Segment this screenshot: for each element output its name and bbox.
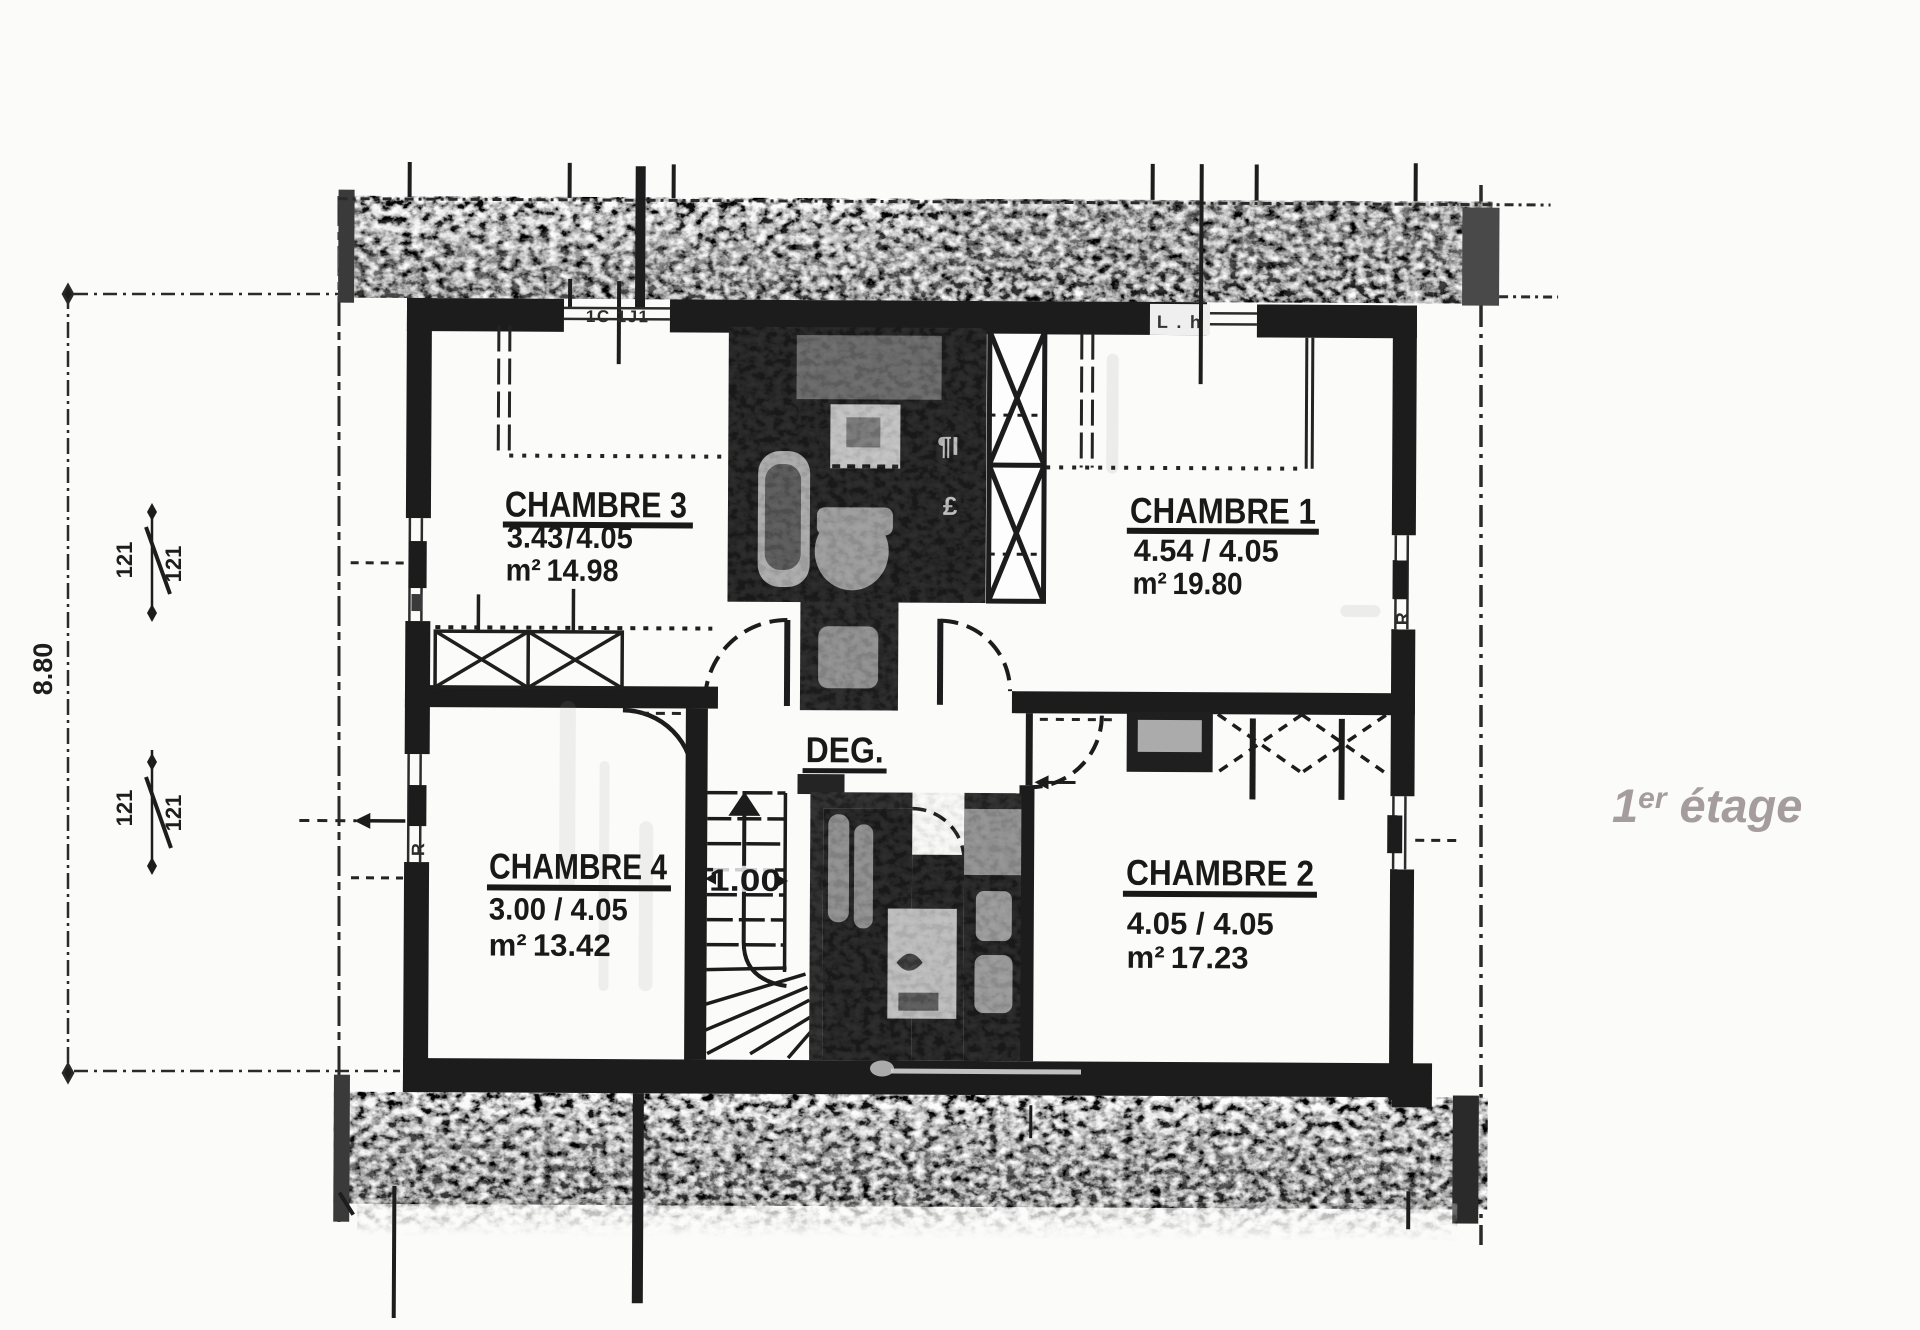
svg-text:4.05 / 4.05: 4.05 / 4.05 [1127, 906, 1274, 942]
svg-text:121: 121 [161, 546, 186, 583]
svg-text:CHAMBRE 1: CHAMBRE 1 [1130, 490, 1316, 532]
svg-text:8.80: 8.80 [28, 643, 58, 696]
svg-text:CHAMBRE 4: CHAMBRE 4 [489, 845, 667, 887]
svg-text:m² 17.23: m² 17.23 [1127, 940, 1249, 976]
svg-text:m² 14.98: m² 14.98 [506, 553, 619, 589]
svg-text:121: 121 [161, 795, 186, 832]
svg-text:4.54 / 4.05: 4.54 / 4.05 [1134, 533, 1279, 569]
svg-text:DEG.: DEG. [806, 729, 884, 770]
svg-text:121: 121 [112, 542, 137, 579]
svg-text:m² 13.42: m² 13.42 [489, 927, 611, 963]
svg-text:m² 19.80: m² 19.80 [1132, 566, 1242, 602]
svg-text:1C 1J1: 1C 1J1 [586, 307, 648, 326]
svg-text:3.00 / 4.05: 3.00 / 4.05 [489, 891, 628, 927]
svg-text:3.43 / 4.05: 3.43 / 4.05 [507, 520, 633, 556]
svg-text:1.00: 1.00 [709, 863, 781, 898]
svg-text:R: R [408, 843, 428, 856]
svg-text:121: 121 [112, 790, 137, 827]
svg-text:CHAMBRE 2: CHAMBRE 2 [1126, 852, 1314, 894]
svg-text:L.h: L.h [1157, 312, 1201, 332]
svg-text:R: R [1392, 612, 1412, 625]
